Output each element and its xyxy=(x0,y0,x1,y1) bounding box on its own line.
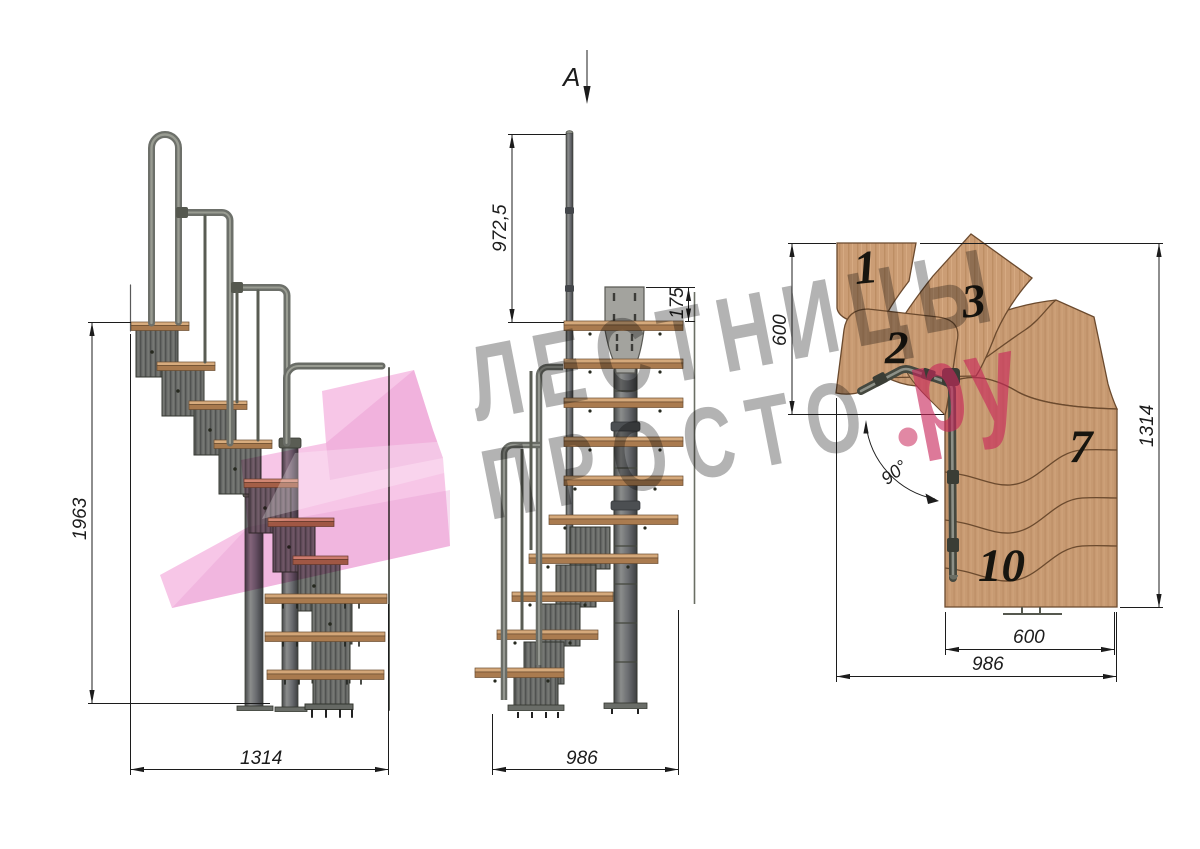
svg-text:A: A xyxy=(561,62,580,92)
svg-text:10: 10 xyxy=(978,540,1025,592)
svg-text:600: 600 xyxy=(1013,627,1045,648)
svg-text:1314: 1314 xyxy=(240,748,282,769)
svg-text:1963: 1963 xyxy=(70,497,91,540)
svg-text:972,5: 972,5 xyxy=(490,204,511,252)
svg-text:986: 986 xyxy=(566,748,598,769)
svg-text:986: 986 xyxy=(972,654,1004,675)
svg-text:1314: 1314 xyxy=(1137,405,1158,447)
svg-text:7: 7 xyxy=(1069,421,1095,473)
